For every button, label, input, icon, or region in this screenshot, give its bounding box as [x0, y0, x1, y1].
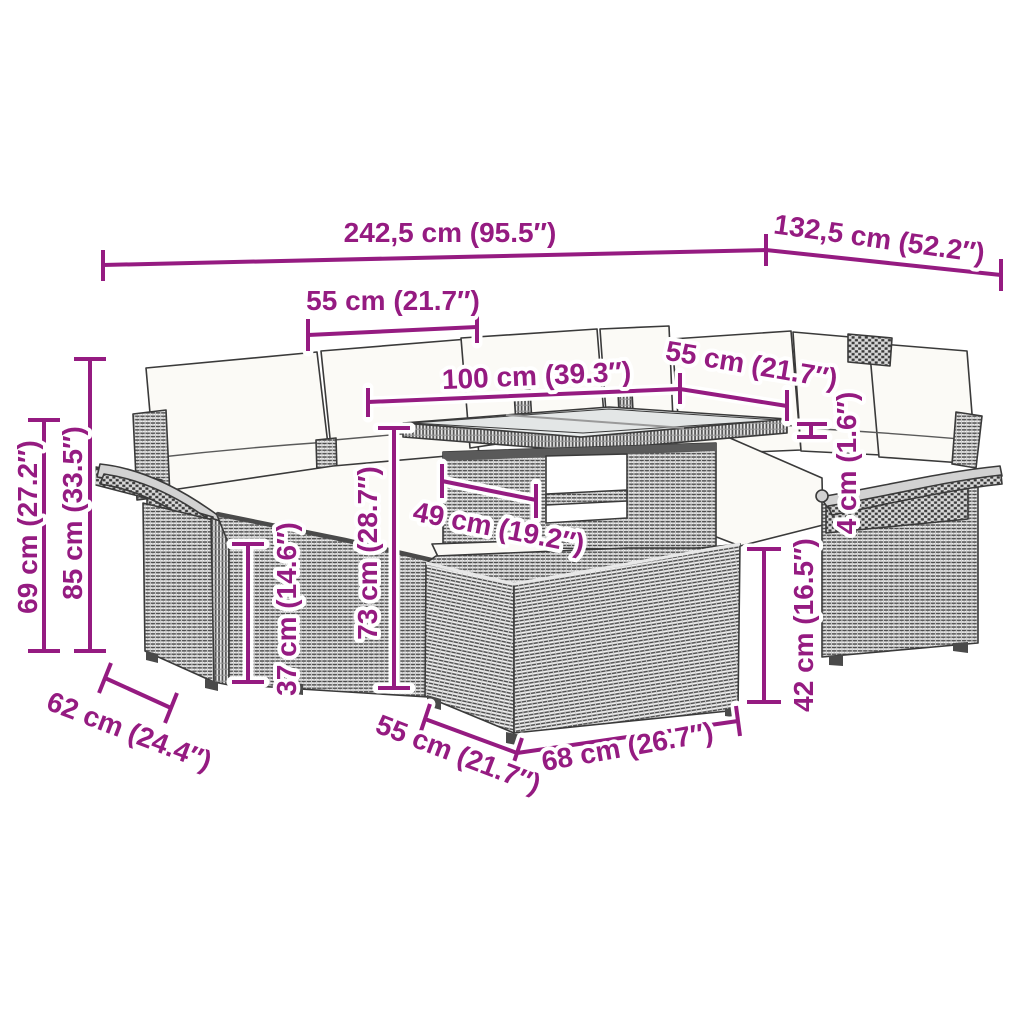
- svg-text:55 cm (21.7″): 55 cm (21.7″): [306, 285, 480, 316]
- svg-text:69 cm (27.2″): 69 cm (27.2″): [12, 440, 43, 614]
- svg-text:42 cm (16.5″): 42 cm (16.5″): [788, 538, 819, 712]
- svg-text:242,5 cm (95.5″): 242,5 cm (95.5″): [344, 217, 557, 248]
- svg-text:4 cm (1.6″): 4 cm (1.6″): [831, 392, 862, 535]
- svg-text:85 cm (33.5″): 85 cm (33.5″): [57, 426, 88, 600]
- svg-text:37 cm (14.6″): 37 cm (14.6″): [271, 522, 302, 696]
- svg-text:62 cm (24.4″): 62 cm (24.4″): [43, 686, 216, 777]
- svg-text:73 cm (28.7″): 73 cm (28.7″): [352, 466, 383, 640]
